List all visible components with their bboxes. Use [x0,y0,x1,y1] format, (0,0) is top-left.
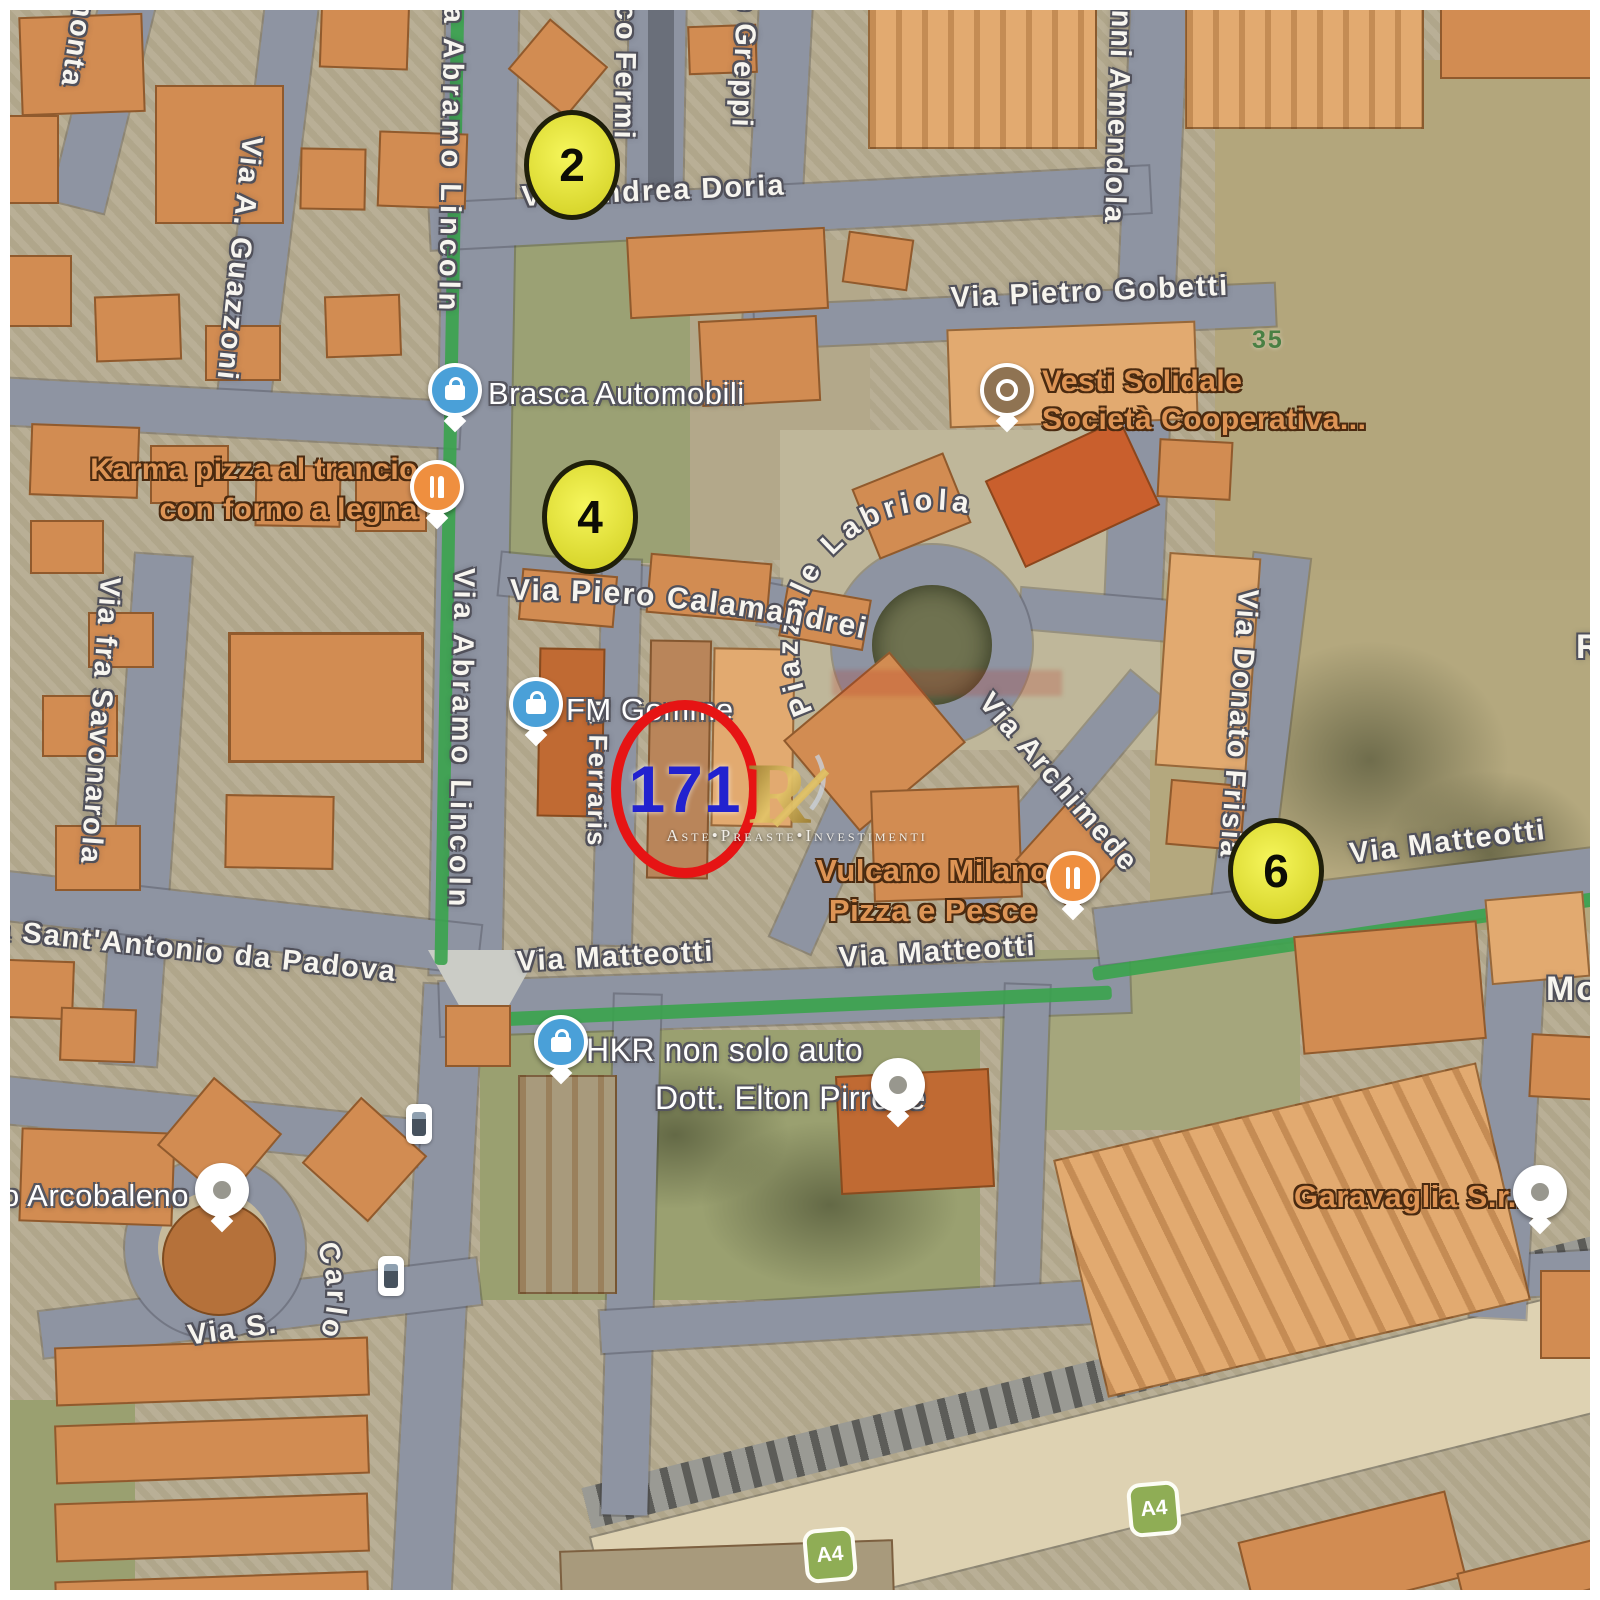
shopping-bag-icon [538,1019,584,1065]
shopping-bag-icon [432,367,478,413]
building [1456,1538,1600,1600]
shopping-bag-icon [513,681,559,727]
poi-label-arcobaleno[interactable]: o Arcobaleno [2,1178,189,1214]
street-label-via-matteotti: Via Matteotti [516,938,715,977]
marker-4-number: 4 [577,490,603,544]
arcobaleno-pin[interactable] [195,1163,249,1217]
poi-label-karma-pizza-line2[interactable]: con forno a legna [80,492,418,528]
poi-label-vesti-solidale-line1[interactable]: Vesti Solidale [1042,364,1242,400]
building [1237,1490,1466,1600]
building [518,568,618,628]
faded-text-artifact [832,670,1062,696]
dot-icon [875,1062,921,1108]
building [299,147,366,210]
building [0,255,72,327]
building [319,0,410,71]
warehouse [868,0,1097,149]
watermark-logo: R [742,742,838,838]
street-label-via-abramo-lincoln: Via Abramo Lincoln [443,567,478,910]
marker-2-number: 2 [559,138,585,192]
building [324,294,402,359]
street-label-via-abramo-lincoln: Via Abramo Lincoln [433,0,468,315]
building [1157,438,1234,501]
building [445,1005,511,1067]
marker-2[interactable]: 2 [524,110,620,220]
karma-restaurant-pin[interactable] [410,460,464,514]
building [1528,1033,1600,1101]
poi-label-vulcano-line1[interactable]: Vulcano Milano [800,852,1066,889]
building [0,115,59,204]
poi-label-garavaglia[interactable]: Garavaglia S.r.l [1294,1178,1526,1215]
house-number-35: 35 [1252,328,1284,353]
vesti-solidale-pin[interactable] [980,363,1034,417]
poi-label-karma-pizza-line1[interactable]: Karma pizza al trancio [80,452,418,488]
building [626,227,829,319]
watermark-caption: Aste•Preaste•Investimenti [652,826,942,846]
poi-label-vesti-solidale-line2[interactable]: Società Cooperativa... [1042,402,1366,438]
dot-icon [199,1167,245,1213]
building [1293,920,1487,1055]
building-complex [228,632,424,763]
marker-171-subject[interactable]: 171 [611,700,759,878]
transit-stop-icon[interactable] [378,1256,404,1296]
street-label-amendola: anni Amendola [1099,0,1136,225]
brasca-pin[interactable] [428,363,482,417]
marker-4[interactable]: 4 [542,460,638,574]
building [30,520,104,574]
satellite-map: Piazzale Labriola Via Piero Calamandrei … [0,0,1600,1600]
marker-6-number: 6 [1263,844,1289,898]
terraced-houses [54,1493,370,1563]
a4-shield-text: A4 [816,1542,845,1568]
building [508,18,609,117]
a4-shield: A4 [802,1526,859,1584]
building [59,1007,137,1064]
dark-slab [648,0,674,195]
building [1540,1270,1600,1359]
hkr-pin[interactable] [534,1015,588,1069]
a4-shield-text: A4 [1140,1496,1169,1522]
marker-171-number: 171 [628,751,741,827]
a4-shield: A4 [1126,1480,1183,1538]
warehouse [1185,0,1424,129]
garavaglia-pin[interactable] [1513,1165,1567,1219]
building [1440,0,1600,79]
poi-label-brasca-automobili[interactable]: Brasca Automobili [488,376,745,412]
fork-knife-icon [1050,855,1096,901]
street-label-fermi: co Fermi [609,3,640,140]
transit-stop-icon[interactable] [406,1104,432,1144]
building [94,294,182,363]
fm-gomme-pin[interactable] [509,677,563,731]
terraced-houses [54,1415,370,1485]
edge-label-r: R [1576,630,1600,664]
vulcano-restaurant-pin[interactable] [1046,851,1100,905]
poi-label-hkr[interactable]: HKR non solo auto [586,1032,863,1069]
building-long [518,1075,617,1294]
building [224,794,334,870]
circle-icon [984,367,1030,413]
poi-label-vulcano-line2[interactable]: Pizza e Pesce [800,892,1066,929]
dot-icon [1517,1169,1563,1215]
street-label-greppi: o Greppi [726,0,760,129]
marker-6[interactable]: 6 [1228,818,1324,924]
pirrone-pin[interactable] [871,1058,925,1112]
building [842,231,915,292]
fork-knife-icon [414,464,460,510]
building [646,553,773,623]
edge-label-mos: Mos [1546,972,1600,1006]
